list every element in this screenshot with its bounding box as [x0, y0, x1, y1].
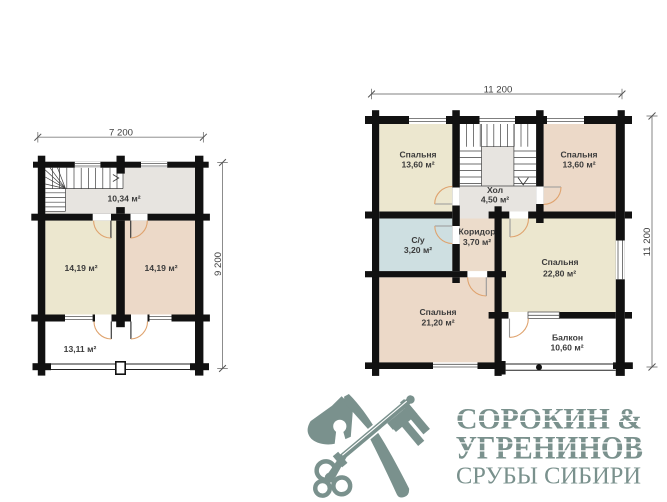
- svg-text:10,34 м²: 10,34 м²: [107, 194, 140, 204]
- svg-text:Коридор: Коридор: [459, 227, 496, 237]
- svg-text:Спальня: Спальня: [399, 150, 436, 160]
- svg-text:С/у: С/у: [411, 235, 425, 245]
- svg-text:3,70 м²: 3,70 м²: [463, 237, 491, 247]
- svg-text:СРУБЫ СИБИРИ: СРУБЫ СИБИРИ: [456, 464, 641, 490]
- svg-text:Балкон: Балкон: [552, 333, 583, 343]
- svg-text:13,11 м²: 13,11 м²: [64, 344, 97, 354]
- svg-text:13,60 м²: 13,60 м²: [562, 159, 595, 169]
- svg-text:9 200: 9 200: [213, 252, 224, 276]
- svg-text:14,19 м²: 14,19 м²: [144, 263, 177, 273]
- svg-text:10,60 м²: 10,60 м²: [550, 343, 583, 353]
- svg-text:11 200: 11 200: [642, 228, 653, 257]
- svg-text:4,50 м²: 4,50 м²: [481, 195, 509, 205]
- svg-text:УГРЕНИНОВ: УГРЕНИНОВ: [456, 430, 644, 466]
- svg-text:3,20 м²: 3,20 м²: [404, 245, 432, 255]
- svg-text:14,19 м²: 14,19 м²: [64, 263, 97, 273]
- svg-text:13,60 м²: 13,60 м²: [401, 159, 434, 169]
- svg-text:22,80 м²: 22,80 м²: [543, 269, 576, 279]
- svg-text:Хол: Хол: [487, 185, 503, 195]
- svg-text:21,20 м²: 21,20 м²: [421, 318, 454, 328]
- svg-text:Спальня: Спальня: [419, 307, 456, 317]
- svg-text:7 200: 7 200: [109, 127, 133, 138]
- svg-text:Спальня: Спальня: [541, 257, 578, 267]
- svg-text:Спальня: Спальня: [560, 150, 597, 160]
